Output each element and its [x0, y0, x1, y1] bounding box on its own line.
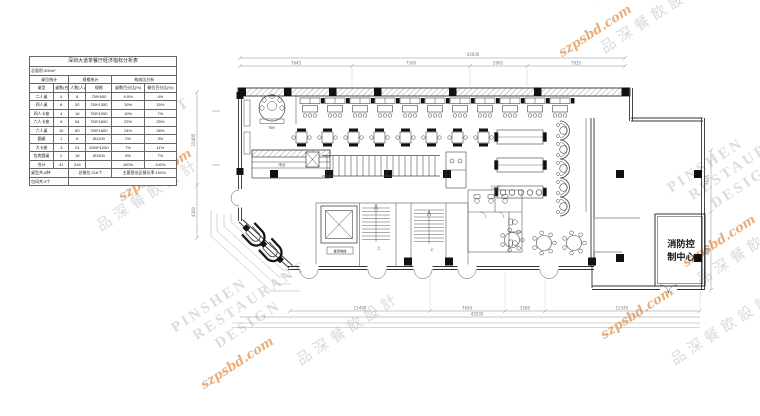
reception-area: [244, 94, 285, 154]
svg-text:43030: 43030: [471, 312, 484, 317]
table-footer-row: 包间共:3个: [30, 177, 177, 186]
table-cell: 216: [69, 160, 86, 169]
table-cell: 合计: [30, 160, 54, 169]
elevator-label: 客用电梯: [334, 249, 348, 254]
long-tables: [495, 130, 547, 198]
table-cell: 11%: [144, 143, 176, 152]
table-footer-row: 桌型共:8种 总餐位:216个 主要营业区餐位率:100%: [30, 169, 177, 178]
table-footer-cell: [69, 177, 177, 186]
table-cell: 大卡座: [30, 143, 54, 152]
stair-up-label: 上: [430, 247, 434, 252]
table-cell: 750*1600: [86, 126, 112, 135]
wc-label: 卫生间: [490, 184, 499, 189]
table-cell: [86, 160, 112, 169]
table-subtitle: 桌位统计: [30, 75, 69, 84]
table-cell: 四人桌: [30, 101, 54, 110]
table-row: 六人卡座954750*160022%25%: [30, 118, 177, 127]
table-cell: 32: [69, 101, 86, 110]
table-header: 餐位百分比(%): [144, 84, 176, 93]
table-cell: 9.5%: [112, 92, 144, 101]
entrance-steps: [211, 210, 300, 291]
svg-text:7635: 7635: [705, 174, 710, 185]
seating-analysis-table: 深圳大道茶餐厅经济指标分析表 总面积:300m² 桌位统计 规格统计 构成比分析…: [29, 56, 177, 186]
table-cell: 6: [69, 135, 86, 144]
table-cell: 8: [69, 92, 86, 101]
svg-text:3560: 3560: [520, 306, 531, 311]
table-subtitle: 规格统计: [69, 75, 112, 84]
table-cell: 19%: [112, 101, 144, 110]
svg-text:4300: 4300: [191, 206, 196, 217]
table-title: 深圳大道茶餐厅经济指标分析表: [30, 57, 177, 67]
table-cell: 24%: [112, 126, 144, 135]
elevator: [321, 206, 357, 254]
table-header: 规格: [86, 84, 112, 93]
table-cell: 六人桌: [30, 126, 54, 135]
table-row: 六人桌1060750*160024%28%: [30, 126, 177, 135]
table-subtitle-row: 总面积:300m²: [30, 67, 177, 76]
table-subtitle: 构成比分析: [112, 75, 177, 84]
table-cell: 750*600: [86, 92, 112, 101]
table-cell: 2%: [112, 135, 144, 144]
table-footer-cell: 主要营业区餐位率:100%: [112, 169, 177, 178]
table-cell: 10%: [112, 109, 144, 118]
svg-text:4635: 4635: [705, 244, 710, 255]
table-row: 大卡座3245200*12007%11%: [30, 143, 177, 152]
table-row: 二人桌48750*6009.5%4%: [30, 92, 177, 101]
svg-text:12345: 12345: [616, 306, 629, 311]
table-row: 四人卡座416750*120010%7%: [30, 109, 177, 118]
table-footer-cell: 桌型共:8种: [30, 169, 69, 178]
table-cell: 7%: [144, 109, 176, 118]
svg-text:2995: 2995: [493, 61, 504, 66]
table-cell: 54: [69, 118, 86, 127]
table-cell: 2: [54, 152, 69, 161]
table-cell: 60: [69, 126, 86, 135]
table-cell: 包房圆桌: [30, 152, 54, 161]
table-cell: 28%: [144, 126, 176, 135]
screenshot-root: PINSHEN RESTAURANT DESIGN PINSHEN RESTAU…: [0, 0, 760, 416]
table-header: 桌数百分比(%): [112, 84, 144, 93]
four-seat-tables-row: [292, 129, 494, 147]
table-row: 包房圆桌216Ø15005%7%: [30, 152, 177, 161]
stairs: [362, 204, 444, 244]
table-cell: 4: [54, 109, 69, 118]
table-cell: 16: [69, 152, 86, 161]
table-cell: 3: [54, 143, 69, 152]
fire-control-label: 制中心: [667, 251, 695, 262]
bar-counter: [252, 150, 330, 178]
table-cell: Ø1500: [86, 152, 112, 161]
table-cell: 二人桌: [30, 92, 54, 101]
table-footer-cell: 包间共:3个: [30, 177, 69, 186]
table-header: 桌型: [30, 84, 54, 93]
table-subtitle: 总面积:300m²: [30, 67, 177, 76]
table-cell: 15%: [144, 101, 176, 110]
bar-label: 吧台: [279, 162, 287, 167]
table-cell: 3%: [144, 135, 176, 144]
svg-text:7645: 7645: [291, 61, 302, 66]
table-cell: 750*1600: [86, 118, 112, 127]
table-cell: 750*1350: [86, 101, 112, 110]
svg-text:4300: 4300: [212, 163, 220, 167]
table-cell: 圆桌: [30, 135, 54, 144]
entrance-vestibule: [242, 223, 285, 265]
svg-text:43030: 43030: [467, 52, 480, 57]
table-cell: 24: [69, 143, 86, 152]
stair-up-label: 上: [377, 245, 381, 250]
table-header-row: 桌型 桌数(台) 人数(人) 规格 桌数百分比(%) 餐位百分比(%): [30, 84, 177, 93]
reception-label: 前台: [269, 125, 275, 130]
doors: [231, 189, 677, 294]
table-title-row: 深圳大道茶餐厅经济指标分析表: [30, 57, 177, 67]
table-cell: 四人卡座: [30, 109, 54, 118]
fire-control-room: [655, 214, 705, 286]
svg-text:15495: 15495: [191, 133, 196, 146]
table-cell: 100%: [144, 160, 176, 169]
table-row: 合计41216100%100%: [30, 160, 177, 169]
table-cell: 4%: [144, 92, 176, 101]
table-cell: Ø1200: [86, 135, 112, 144]
table-cell: 41: [54, 160, 69, 169]
walls: [238, 88, 705, 290]
table-subtitle-row: 桌位统计 规格统计 构成比分析: [30, 75, 177, 84]
round-booths: [557, 121, 570, 216]
table-cell: 25%: [144, 118, 176, 127]
table-cell: 5%: [112, 152, 144, 161]
table-cell: 4: [54, 92, 69, 101]
table-cell: 六人卡座: [30, 118, 54, 127]
table-cell: 100%: [112, 160, 144, 169]
svg-text:7500: 7500: [406, 61, 417, 66]
table-cell: 10: [54, 126, 69, 135]
svg-text:4300: 4300: [212, 109, 220, 113]
table-cell: 1: [54, 135, 69, 144]
table-cell: 9: [54, 118, 69, 127]
table-footer-cell: 总餐位:216个: [69, 169, 112, 178]
booth-seating-row: [300, 98, 575, 117]
svg-text:7935: 7935: [571, 61, 582, 66]
dimension-lines: [195, 56, 713, 328]
fire-control-label: 消防控: [667, 238, 695, 249]
table-cell: 16: [69, 109, 86, 118]
table-cell: 7%: [112, 143, 144, 152]
table-row: 四人桌832750*135019%15%: [30, 101, 177, 110]
table-header: 桌数(台): [54, 84, 69, 93]
table-header: 人数(人): [69, 84, 86, 93]
svg-text:13490: 13490: [354, 306, 367, 311]
table-row: 圆桌16Ø12002%3%: [30, 135, 177, 144]
table-cell: 7%: [144, 152, 176, 161]
table-cell: 22%: [112, 118, 144, 127]
svg-text:7650: 7650: [462, 306, 473, 311]
table-cell: 5200*1200: [86, 143, 112, 152]
restrooms: [468, 190, 522, 252]
table-cell: 750*1200: [86, 109, 112, 118]
table-cell: 8: [54, 101, 69, 110]
